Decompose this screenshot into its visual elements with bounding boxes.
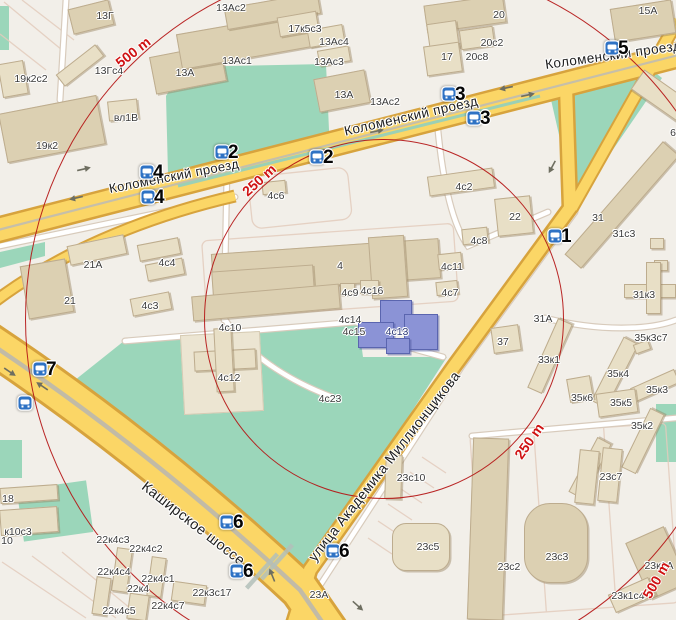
building-label: 13Ас4	[319, 36, 349, 48]
building-label: 10	[1, 535, 13, 547]
building-label: 4с15	[343, 326, 366, 338]
bus-stop-number: 3	[455, 84, 466, 106]
building-label: 35к3	[646, 384, 668, 396]
building	[20, 258, 75, 319]
building-label: 23с2	[498, 561, 521, 573]
building-label: 13Ас2	[370, 96, 400, 108]
building-label: 22к4	[127, 583, 149, 595]
building-label: 31	[592, 212, 604, 224]
building-label: 19к2с2	[14, 73, 47, 85]
bus-stop-number: 6	[339, 541, 350, 563]
building-label: 22к4с5	[102, 605, 135, 617]
bus-stop-icon[interactable]	[549, 230, 562, 243]
building-label: 13А	[176, 67, 195, 79]
bus-stop-icon[interactable]	[221, 516, 234, 529]
bus-stop-number: 4	[154, 187, 165, 209]
bus-stop-number: 6	[243, 561, 254, 583]
building-label: 31к3	[633, 289, 655, 301]
building-label: 13А	[335, 89, 354, 101]
building-label: 4с10	[219, 322, 242, 334]
bus-stop-icon[interactable]	[443, 88, 456, 101]
bus-stop-number: 1	[561, 226, 572, 248]
building-label: 37	[497, 336, 509, 348]
building	[467, 437, 509, 620]
bus-stop-icon[interactable]	[19, 397, 32, 410]
building-label: 4с11	[441, 261, 463, 273]
building-label: 20с2	[481, 37, 504, 49]
bus-stop-icon[interactable]	[327, 545, 340, 558]
building-label: 22к3с17	[192, 587, 231, 599]
bus-stop-icon[interactable]	[468, 112, 481, 125]
bus-stop-icon[interactable]	[141, 166, 154, 179]
building	[646, 262, 661, 314]
building-label: 35к4	[607, 368, 629, 380]
bus-stop-number: 5	[618, 38, 629, 60]
building-label: 6	[670, 127, 676, 139]
building-label: 4	[337, 260, 343, 272]
building-label: 22	[509, 211, 521, 223]
building-label: 4с14	[339, 314, 362, 326]
bus-stop-icon[interactable]	[216, 146, 229, 159]
bus-stop-number: 2	[323, 147, 334, 169]
building-label: 20с8	[466, 51, 489, 63]
bus-stop-number: 3	[480, 108, 491, 130]
building-label: вл1В	[114, 112, 138, 124]
building-label: 35к6	[571, 392, 593, 404]
bus-stop-number: 4	[153, 162, 164, 184]
bus-stop-number: 6	[233, 512, 244, 534]
building-label: 31с3	[613, 228, 636, 240]
building-label: 23с10	[397, 472, 426, 484]
building	[650, 238, 664, 249]
building-label: 4с6	[268, 190, 285, 202]
selected-building[interactable]	[386, 338, 410, 354]
bus-stop-number: 7	[46, 359, 57, 381]
building-label: 22к4с7	[151, 600, 184, 612]
building-label: 20	[493, 9, 505, 21]
building-label: 4с23	[319, 393, 342, 405]
building-label: 21А	[84, 259, 103, 271]
building-label: 22к4с4	[97, 566, 130, 578]
bus-stop-icon[interactable]	[606, 42, 619, 55]
building-label: 4с7	[442, 287, 459, 299]
building-label: 4с16	[361, 285, 384, 297]
building-label: 13Ас3	[314, 56, 344, 68]
building-label: 4с2	[456, 181, 473, 193]
building-label: 4с4	[159, 257, 176, 269]
building-label: 33к1	[538, 354, 560, 366]
building-label: 15А	[639, 5, 658, 17]
building-label: 35к5	[610, 397, 632, 409]
building-label: 4с9	[342, 287, 359, 299]
map-canvas[interactable]: 13Г19к2с213Гс413Авл1В19к213Ас217к5с313Ас…	[0, 0, 676, 620]
building-label: 35к3с7	[634, 332, 667, 344]
building-label: 4с8	[471, 235, 488, 247]
building-label: 4с12	[218, 372, 241, 384]
building-label: 13Г	[96, 10, 113, 22]
building-label: 18	[2, 493, 14, 505]
building-label: 23с5	[417, 541, 440, 553]
building-label: 21	[64, 295, 76, 307]
building-label: 4с13	[386, 326, 409, 338]
building-label: 31А	[534, 313, 553, 325]
building	[524, 503, 588, 583]
bus-stop-number: 2	[228, 142, 239, 164]
building-label: 23с3	[546, 551, 569, 563]
building-label: 22к4с2	[129, 543, 162, 555]
building-label: 13Ас2	[216, 2, 246, 14]
building-label: 19к2	[36, 140, 58, 152]
building-label: 17к5с3	[288, 23, 321, 35]
building-label: 4с3	[142, 300, 159, 312]
bus-stop-icon[interactable]	[142, 191, 155, 204]
building-label: 17	[441, 51, 453, 63]
bus-stop-icon[interactable]	[34, 363, 47, 376]
building-label: 22к4с3	[96, 534, 129, 546]
bus-stop-icon[interactable]	[231, 565, 244, 578]
building-label: 35к2	[631, 420, 653, 432]
building-label: 23А	[310, 589, 329, 601]
building-label: 13Ас1	[222, 55, 252, 67]
bus-stop-icon[interactable]	[311, 151, 324, 164]
building-label: 23с7	[600, 471, 623, 483]
